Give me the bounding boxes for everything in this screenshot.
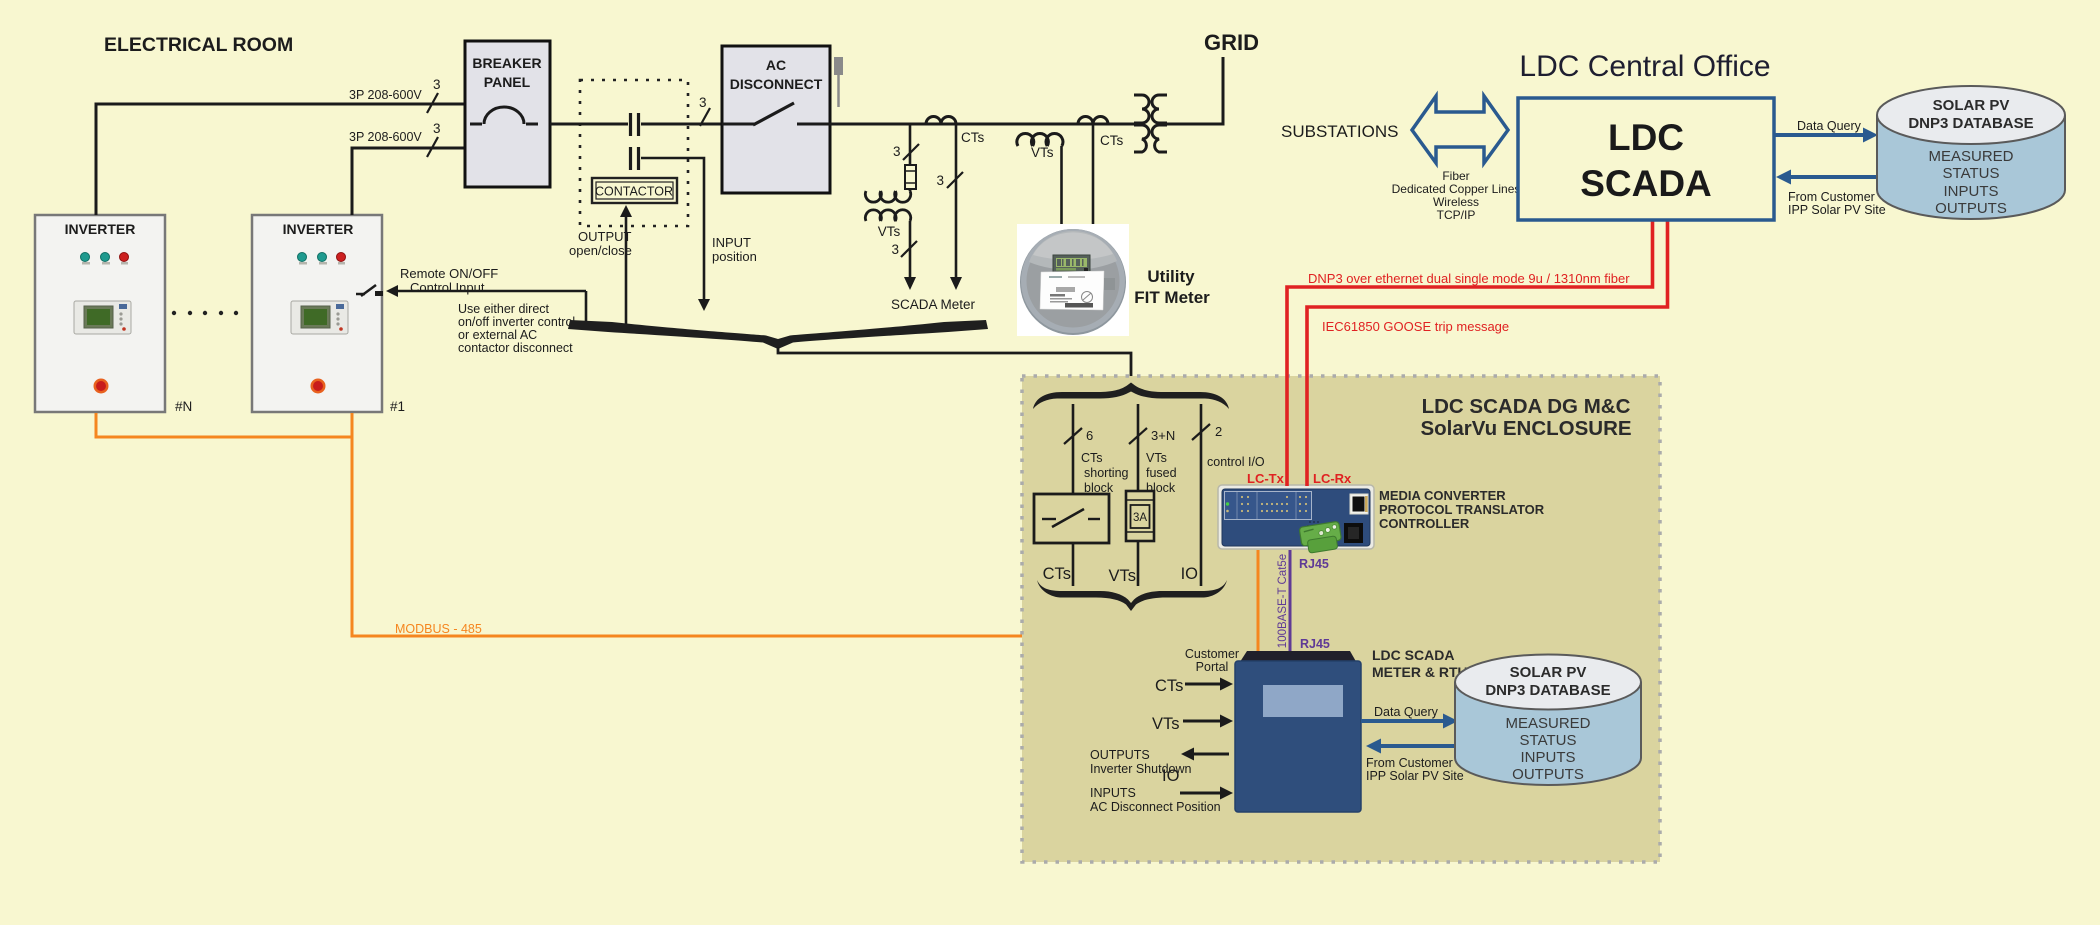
- svg-text:MODBUS - 485: MODBUS - 485: [395, 622, 482, 636]
- svg-text:Utility: Utility: [1147, 267, 1195, 286]
- svg-text:FIT Meter: FIT Meter: [1134, 288, 1210, 307]
- svg-text:3: 3: [936, 173, 944, 188]
- svg-text:shorting: shorting: [1084, 466, 1129, 480]
- svg-text:open/close: open/close: [569, 243, 632, 258]
- svg-text:INVERTER: INVERTER: [283, 221, 354, 237]
- svg-text:DNP3 DATABASE: DNP3 DATABASE: [1485, 682, 1610, 699]
- svg-text:SOLAR PV: SOLAR PV: [1510, 664, 1587, 681]
- svg-text:Dedicated Copper Lines: Dedicated Copper Lines: [1392, 182, 1521, 196]
- svg-text:Data Query: Data Query: [1374, 705, 1439, 719]
- svg-text:VTs: VTs: [1152, 715, 1180, 733]
- svg-text:OUTPUTS: OUTPUTS: [1935, 200, 2007, 217]
- svg-text:AC: AC: [766, 57, 786, 73]
- svg-text:or external AC: or external AC: [458, 328, 537, 342]
- svg-text:DNP3 over ethernet dual single: DNP3 over ethernet dual single mode 9u /…: [1308, 271, 1630, 286]
- svg-text:RJ45: RJ45: [1300, 637, 1330, 651]
- svg-text:RJ45: RJ45: [1299, 557, 1329, 571]
- svg-text:3P 208-600V: 3P 208-600V: [349, 88, 422, 102]
- svg-text:CTs: CTs: [1043, 565, 1071, 583]
- svg-text:METER & RTU: METER & RTU: [1372, 664, 1468, 680]
- svg-text:on/off inverter control: on/off inverter control: [458, 315, 575, 329]
- svg-text:3: 3: [699, 95, 707, 110]
- svg-text:3: 3: [891, 242, 899, 257]
- svg-text:IEC61850 GOOSE trip message: IEC61850 GOOSE trip message: [1322, 319, 1509, 334]
- svg-text:OUTPUTS: OUTPUTS: [1512, 766, 1584, 783]
- svg-text:PROTOCOL TRANSLATOR: PROTOCOL TRANSLATOR: [1379, 502, 1545, 517]
- svg-text:CTs: CTs: [961, 130, 984, 145]
- svg-text:Data Query: Data Query: [1797, 119, 1862, 133]
- svg-text:3: 3: [433, 121, 441, 136]
- svg-text:SCADA: SCADA: [1580, 163, 1712, 204]
- svg-text:STATUS: STATUS: [1943, 165, 2000, 182]
- svg-text:IO: IO: [1181, 565, 1199, 583]
- svg-text:3: 3: [433, 77, 441, 92]
- svg-text:GRID: GRID: [1204, 30, 1259, 55]
- svg-text:block: block: [1146, 481, 1176, 495]
- svg-text:VTs: VTs: [1108, 567, 1136, 585]
- svg-text:CTs: CTs: [1155, 677, 1183, 695]
- svg-text:SUBSTATIONS: SUBSTATIONS: [1281, 122, 1398, 141]
- svg-text:IO: IO: [1162, 767, 1180, 785]
- svg-text:CTs: CTs: [1081, 451, 1103, 465]
- svg-text:SolarVu ENCLOSURE: SolarVu ENCLOSURE: [1420, 417, 1631, 440]
- svg-text:VTs: VTs: [1031, 145, 1054, 160]
- svg-text:Remote ON/OFF: Remote ON/OFF: [400, 266, 498, 281]
- svg-text:#1: #1: [390, 399, 405, 414]
- svg-text:LDC Central Office: LDC Central Office: [1519, 50, 1770, 83]
- svg-text:TCP/IP: TCP/IP: [1437, 208, 1476, 222]
- svg-text:Portal: Portal: [1196, 660, 1229, 674]
- svg-text:INPUTS: INPUTS: [1943, 183, 1998, 200]
- svg-text:100BASE-T Cat5e: 100BASE-T Cat5e: [1277, 554, 1289, 648]
- svg-text:LC-Rx: LC-Rx: [1313, 471, 1352, 486]
- svg-text:2: 2: [1215, 424, 1222, 439]
- svg-text:IPP Solar PV Site: IPP Solar PV Site: [1788, 203, 1886, 217]
- svg-text:VTs: VTs: [878, 224, 901, 239]
- svg-text:INPUTS: INPUTS: [1520, 749, 1575, 766]
- svg-text:CTs: CTs: [1100, 133, 1123, 148]
- svg-text:LC-Tx: LC-Tx: [1247, 471, 1285, 486]
- svg-text:VTs: VTs: [1146, 451, 1167, 465]
- svg-text:LDC SCADA: LDC SCADA: [1372, 647, 1454, 663]
- svg-text:INPUT: INPUT: [712, 235, 751, 250]
- svg-text:From Customer: From Customer: [1366, 756, 1453, 770]
- svg-text:From Customer: From Customer: [1788, 190, 1875, 204]
- svg-text:INPUTS: INPUTS: [1090, 786, 1136, 800]
- svg-text:STATUS: STATUS: [1520, 732, 1577, 749]
- svg-text:SCADA Meter: SCADA Meter: [891, 297, 976, 312]
- svg-text:PANEL: PANEL: [484, 74, 531, 90]
- svg-text:MEDIA CONVERTER: MEDIA CONVERTER: [1379, 488, 1506, 503]
- svg-text:#N: #N: [175, 399, 192, 414]
- svg-text:LDC: LDC: [1608, 117, 1684, 158]
- svg-text:fused: fused: [1146, 466, 1177, 480]
- svg-text:OUTPUTS: OUTPUTS: [1090, 748, 1150, 762]
- svg-text:IPP Solar PV Site: IPP Solar PV Site: [1366, 769, 1464, 783]
- svg-text:MEASURED: MEASURED: [1505, 715, 1590, 732]
- svg-text:control I/O: control I/O: [1207, 455, 1265, 469]
- svg-text:ELECTRICAL ROOM: ELECTRICAL ROOM: [104, 34, 293, 56]
- svg-text:3A: 3A: [1133, 512, 1147, 524]
- svg-text:Control Input: Control Input: [410, 280, 485, 295]
- svg-text:3+N: 3+N: [1151, 428, 1175, 443]
- svg-text:MEASURED: MEASURED: [1928, 148, 2013, 165]
- svg-text:DNP3 DATABASE: DNP3 DATABASE: [1908, 115, 2033, 132]
- svg-text:SOLAR PV: SOLAR PV: [1933, 97, 2010, 114]
- svg-text:3: 3: [893, 144, 901, 159]
- svg-text:Use either direct: Use either direct: [458, 302, 550, 316]
- svg-text:CONTACTOR: CONTACTOR: [595, 185, 673, 199]
- svg-text:AC Disconnect Position: AC Disconnect Position: [1090, 800, 1221, 814]
- svg-text:6: 6: [1086, 428, 1093, 443]
- svg-text:Wireless: Wireless: [1433, 195, 1479, 209]
- svg-text:3P 208-600V: 3P 208-600V: [349, 130, 422, 144]
- svg-text:LDC SCADA DG M&C: LDC SCADA DG M&C: [1422, 395, 1631, 418]
- svg-text:BREAKER: BREAKER: [472, 55, 541, 71]
- svg-text:INVERTER: INVERTER: [65, 221, 136, 237]
- svg-text:Fiber: Fiber: [1442, 169, 1469, 183]
- svg-text:position: position: [712, 249, 757, 264]
- svg-text:contactor disconnect: contactor disconnect: [458, 341, 573, 355]
- svg-text:DISCONNECT: DISCONNECT: [730, 76, 823, 92]
- svg-text:OUTPUT: OUTPUT: [578, 229, 632, 244]
- svg-text:CONTROLLER: CONTROLLER: [1379, 516, 1470, 531]
- svg-text:Customer: Customer: [1185, 647, 1239, 661]
